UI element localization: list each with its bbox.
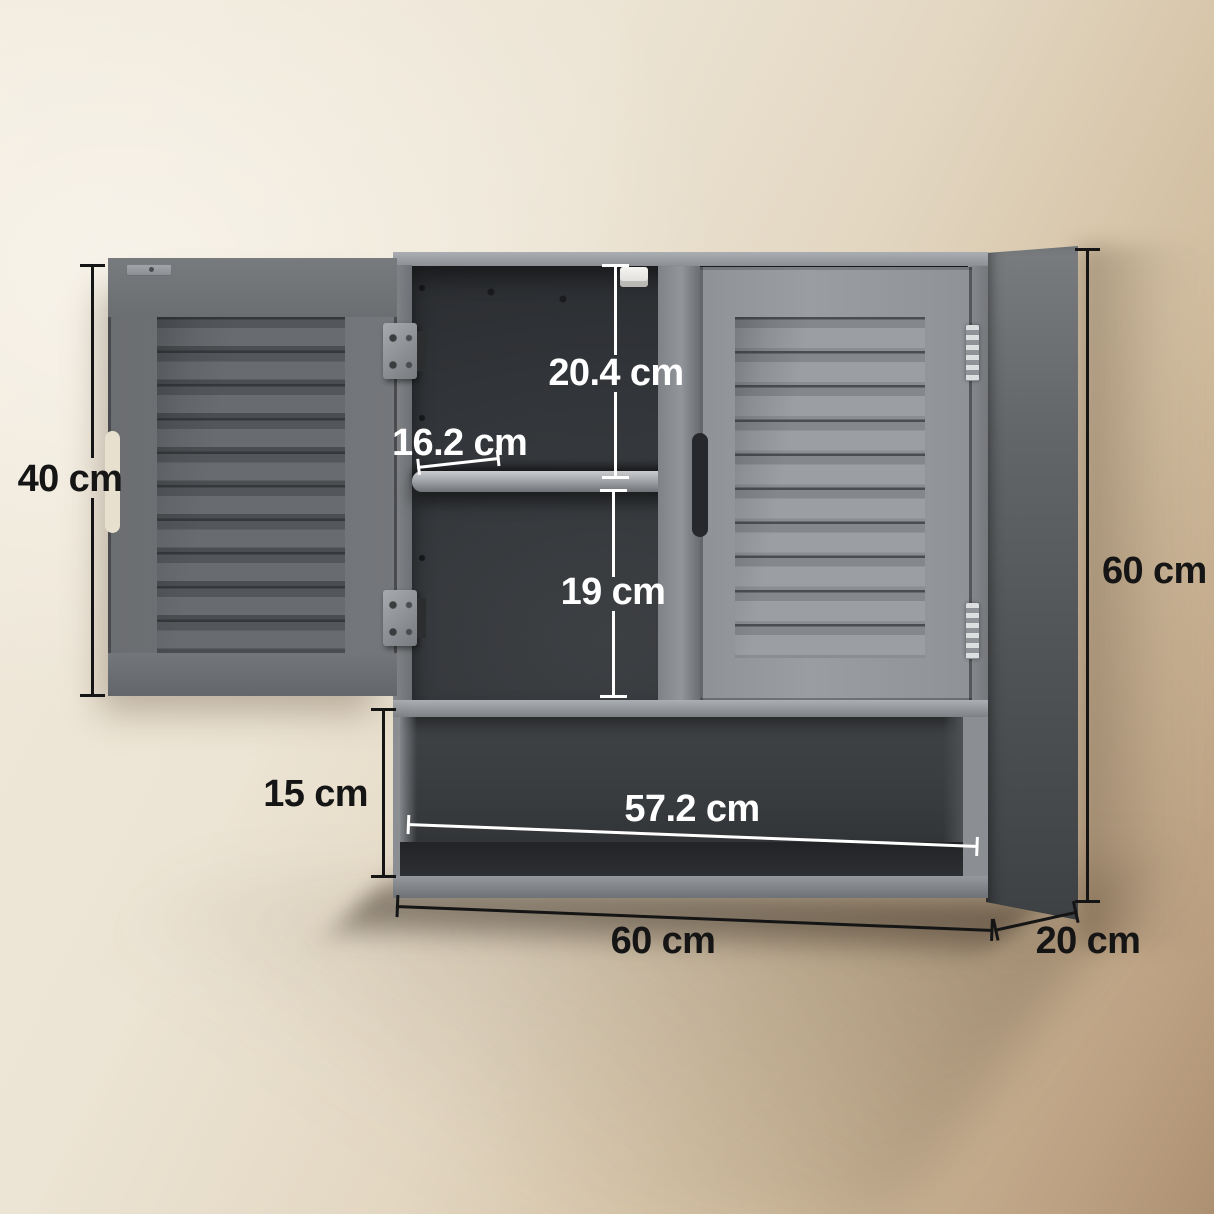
open-shelf-top-panel [393,700,988,717]
dim-tick [371,875,396,878]
dim-tick [80,694,105,697]
left-door-louvers [157,317,345,653]
dim-tick [1075,900,1100,903]
product-dimension-diagram: 40 cm 20.4 cm 16.2 cm 19 cm 15 cm 57.2 c… [0,0,1214,1214]
right-door-handle-notch [692,433,708,537]
dim-line-door-height [91,498,94,697]
dim-tick [80,264,105,267]
dim-label-top-compartment: 20.4 cm [536,353,696,393]
left-door-bottom-rail [108,653,397,696]
dim-line-door-height [91,266,94,458]
left-door-open [108,258,397,696]
dim-tick [600,489,627,492]
left-door-hinge-bottom [383,590,417,646]
right-door-hinge-top [966,325,979,381]
dim-line-middle-compartment [612,611,615,698]
dim-line-middle-compartment [612,491,615,577]
dim-label-overall-depth: 20 cm [1028,921,1148,961]
open-shelf-floor [400,842,963,876]
dim-tick [602,476,629,479]
dim-line-overall-height [1086,250,1089,902]
dim-tick [600,695,627,698]
dim-line-top-compartment [614,392,617,478]
dim-label-inner-width: 57.2 cm [612,789,772,829]
right-door-closed [700,267,972,701]
cabinet-side-panel [986,246,1078,920]
middle-shelf [412,471,682,492]
cabinet-bottom-edge [393,876,988,898]
dim-tick [1075,248,1100,251]
magnetic-catch [620,267,648,287]
dim-label-door-height: 40 cm [10,459,130,499]
dim-label-overall-width: 60 cm [598,921,728,961]
dim-line-open-shelf [382,710,385,878]
right-door-louvers [735,317,925,658]
cabinet-top-edge [393,252,988,265]
dim-label-overall-height: 60 cm [1102,551,1207,591]
dim-tick [371,708,396,711]
dim-label-open-shelf: 15 cm [252,774,368,814]
right-door-hinge-bottom [966,603,979,659]
left-door-catch-plate [126,264,172,276]
dim-label-middle-compartment: 19 cm [533,572,693,612]
dim-label-shelf-depth: 16.2 cm [392,423,512,463]
dim-line-top-compartment [614,266,617,355]
left-door-hinge-top [383,323,417,379]
dim-tick [602,264,629,267]
